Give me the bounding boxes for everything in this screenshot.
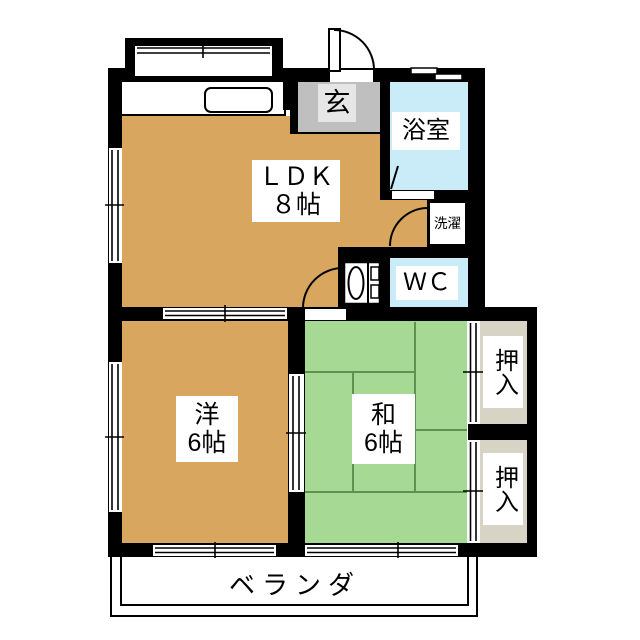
floor-plan: ＬＤＫ ８帖 洋 6帖 和 6帖 浴室 ＷＣ 玄 洗濯 押入 押入 ベランダ: [0, 0, 640, 640]
label-bathroom: 浴室: [392, 112, 460, 150]
label-entrance: 玄: [318, 84, 356, 122]
label-japanese-room: 和 6帖: [352, 394, 415, 464]
western-size: 6帖: [188, 429, 227, 457]
label-closet-lower: 押入: [483, 453, 523, 525]
label-wc: ＷＣ: [396, 266, 458, 300]
ldk-western-sliding-door: [163, 308, 287, 319]
ldk-left-window: [109, 148, 122, 263]
closet-upper-fusuma: [467, 321, 480, 424]
entrance-door-leaf: [328, 28, 341, 72]
ldk-size: ８帖: [271, 191, 321, 219]
ldk-name: ＬＤＫ: [258, 163, 333, 191]
label-western-room: 洋 6帖: [176, 396, 238, 462]
japanese-name: 和: [371, 401, 396, 429]
wall-entry-step-stub: [290, 104, 298, 134]
wall-bathroom-left: [380, 68, 390, 200]
kitchen-counter: [122, 84, 286, 116]
entrance-name: 玄: [324, 88, 351, 118]
wc-name: ＷＣ: [403, 270, 451, 297]
label-closet-upper: 押入: [483, 336, 523, 408]
western-name: 洋: [194, 401, 219, 429]
label-veranda: ベランダ: [160, 566, 430, 600]
wall-toilet-compartment: [338, 258, 390, 307]
ldk-corridor-floor: [380, 200, 427, 247]
western-japanese-fusuma: [289, 374, 304, 492]
wall-right-upper: [468, 68, 485, 321]
western-bottom-window: [153, 545, 276, 556]
wall-closet-divider: [468, 424, 537, 440]
japanese-size: 6帖: [364, 429, 403, 457]
closet-upper-name: 押入: [490, 348, 517, 396]
wall-wc-top: [338, 247, 468, 258]
label-ldk: ＬＤＫ ８帖: [252, 160, 340, 222]
laundry-name: 洗濯: [434, 216, 461, 231]
japanese-bottom-window: [305, 545, 458, 556]
japanese-room-door-gap: [305, 309, 346, 320]
kitchen-bay-window: [135, 46, 272, 76]
veranda-name: ベランダ: [229, 565, 361, 602]
bathroom-name: 浴室: [402, 118, 450, 145]
bathroom-door-gap: [392, 191, 434, 199]
closet-lower-name: 押入: [490, 465, 517, 513]
closet-lower-fusuma: [467, 440, 480, 543]
western-left-window: [109, 362, 122, 512]
label-laundry: 洗濯: [431, 212, 464, 236]
